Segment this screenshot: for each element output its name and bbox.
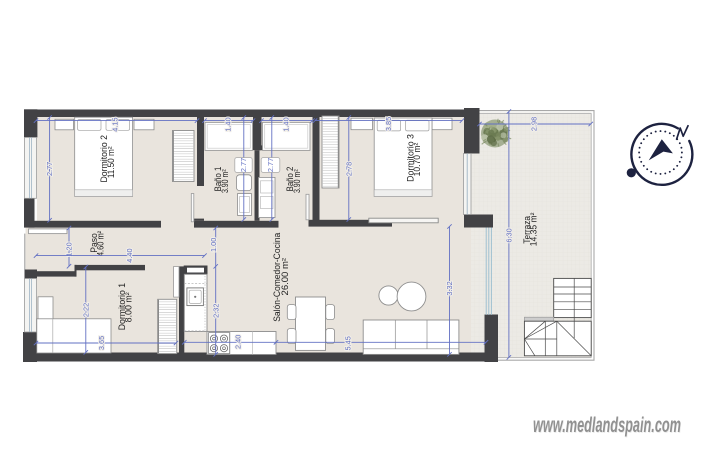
svg-text:8.00 m²: 8.00 m²	[123, 292, 133, 322]
svg-text:4.40: 4.40	[127, 248, 134, 262]
svg-text:10.70 m²: 10.70 m²	[412, 143, 422, 177]
svg-text:www.medlandspain.com: www.medlandspain.com	[533, 414, 681, 437]
svg-text:2.77: 2.77	[268, 158, 275, 172]
svg-text:3.32: 3.32	[447, 281, 454, 295]
svg-text:14.35 m²: 14.35 m²	[528, 213, 538, 247]
svg-text:26.00 m²: 26.00 m²	[280, 258, 290, 296]
svg-text:11.50 m²: 11.50 m²	[106, 146, 116, 178]
svg-text:1.00: 1.00	[211, 238, 218, 252]
svg-text:2.22: 2.22	[83, 303, 90, 317]
svg-text:2.77: 2.77	[47, 162, 54, 176]
svg-text:6.30: 6.30	[506, 228, 513, 242]
svg-text:3.85: 3.85	[386, 117, 393, 131]
svg-text:2.32: 2.32	[213, 303, 220, 317]
svg-text:2.77: 2.77	[241, 158, 248, 172]
svg-text:3.65: 3.65	[99, 336, 106, 350]
svg-text:4.60 m²: 4.60 m²	[96, 231, 106, 256]
svg-text:2.40: 2.40	[236, 335, 243, 349]
svg-text:2.78: 2.78	[346, 162, 353, 176]
svg-text:1.40: 1.40	[283, 117, 290, 131]
svg-text:1.20: 1.20	[67, 242, 74, 256]
svg-text:4.15: 4.15	[112, 117, 119, 131]
svg-text:2.98: 2.98	[531, 117, 538, 131]
svg-text:5.45: 5.45	[346, 336, 353, 350]
svg-text:1.40: 1.40	[225, 117, 232, 131]
svg-text:3.90 m²: 3.90 m²	[220, 169, 230, 193]
svg-text:3.90 m²: 3.90 m²	[292, 169, 302, 193]
